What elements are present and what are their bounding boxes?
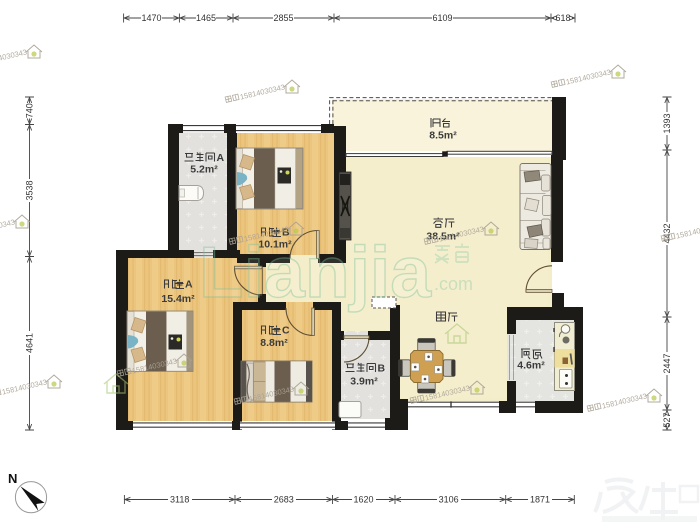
svg-text:15.4m²: 15.4m²: [161, 293, 195, 305]
svg-text:1620: 1620: [353, 495, 373, 505]
svg-text:8.5m²: 8.5m²: [429, 130, 457, 142]
svg-text:6109: 6109: [432, 13, 452, 23]
svg-text:3.9m²: 3.9m²: [350, 376, 378, 388]
svg-text:1871: 1871: [530, 495, 550, 505]
svg-text:A: A: [217, 152, 225, 164]
svg-text:3106: 3106: [439, 495, 459, 505]
svg-text:5.2m²: 5.2m²: [190, 164, 218, 176]
svg-text:2447: 2447: [662, 353, 672, 373]
svg-text:1393: 1393: [662, 113, 672, 133]
svg-text:2855: 2855: [273, 13, 293, 23]
svg-text:A: A: [185, 279, 193, 291]
svg-text:527: 527: [662, 412, 672, 427]
svg-text:618: 618: [555, 13, 570, 23]
svg-text:C: C: [282, 325, 290, 337]
svg-text:Lianjia: Lianjia: [199, 233, 432, 313]
svg-text:B: B: [378, 363, 386, 375]
svg-text:3118: 3118: [170, 495, 189, 505]
svg-text:N: N: [8, 471, 17, 486]
svg-text:740: 740: [25, 103, 35, 118]
svg-text:.com: .com: [434, 274, 473, 294]
svg-text:8.8m²: 8.8m²: [260, 337, 288, 349]
svg-text:3538: 3538: [25, 180, 35, 200]
svg-text:1470: 1470: [141, 13, 161, 23]
svg-text:4.6m²: 4.6m²: [517, 360, 545, 372]
svg-text:2683: 2683: [274, 495, 294, 505]
svg-text:1465: 1465: [196, 13, 216, 23]
svg-text:4641: 4641: [25, 333, 35, 353]
